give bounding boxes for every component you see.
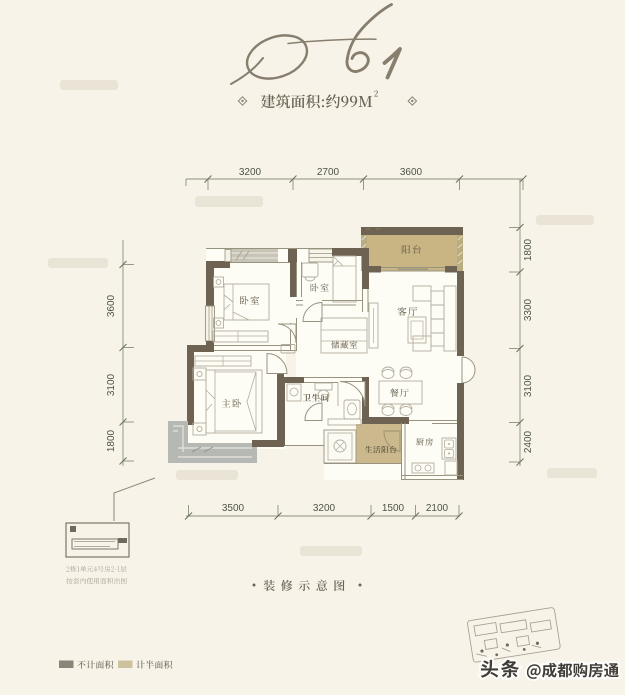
svg-text:3100: 3100 — [523, 374, 534, 397]
svg-text:1500: 1500 — [382, 503, 405, 514]
svg-text:3600: 3600 — [106, 294, 117, 317]
svg-text:3500: 3500 — [222, 503, 245, 514]
svg-text:3200: 3200 — [313, 503, 336, 514]
svg-text:3200: 3200 — [239, 167, 262, 178]
svg-text:1800: 1800 — [523, 238, 534, 261]
svg-text:2100: 2100 — [426, 503, 449, 514]
svg-text:1800: 1800 — [106, 429, 117, 452]
svg-text:3300: 3300 — [523, 298, 534, 321]
svg-text:2700: 2700 — [317, 167, 340, 178]
svg-text:3100: 3100 — [106, 373, 117, 396]
svg-text:3600: 3600 — [400, 167, 423, 178]
svg-text:2400: 2400 — [523, 430, 534, 453]
